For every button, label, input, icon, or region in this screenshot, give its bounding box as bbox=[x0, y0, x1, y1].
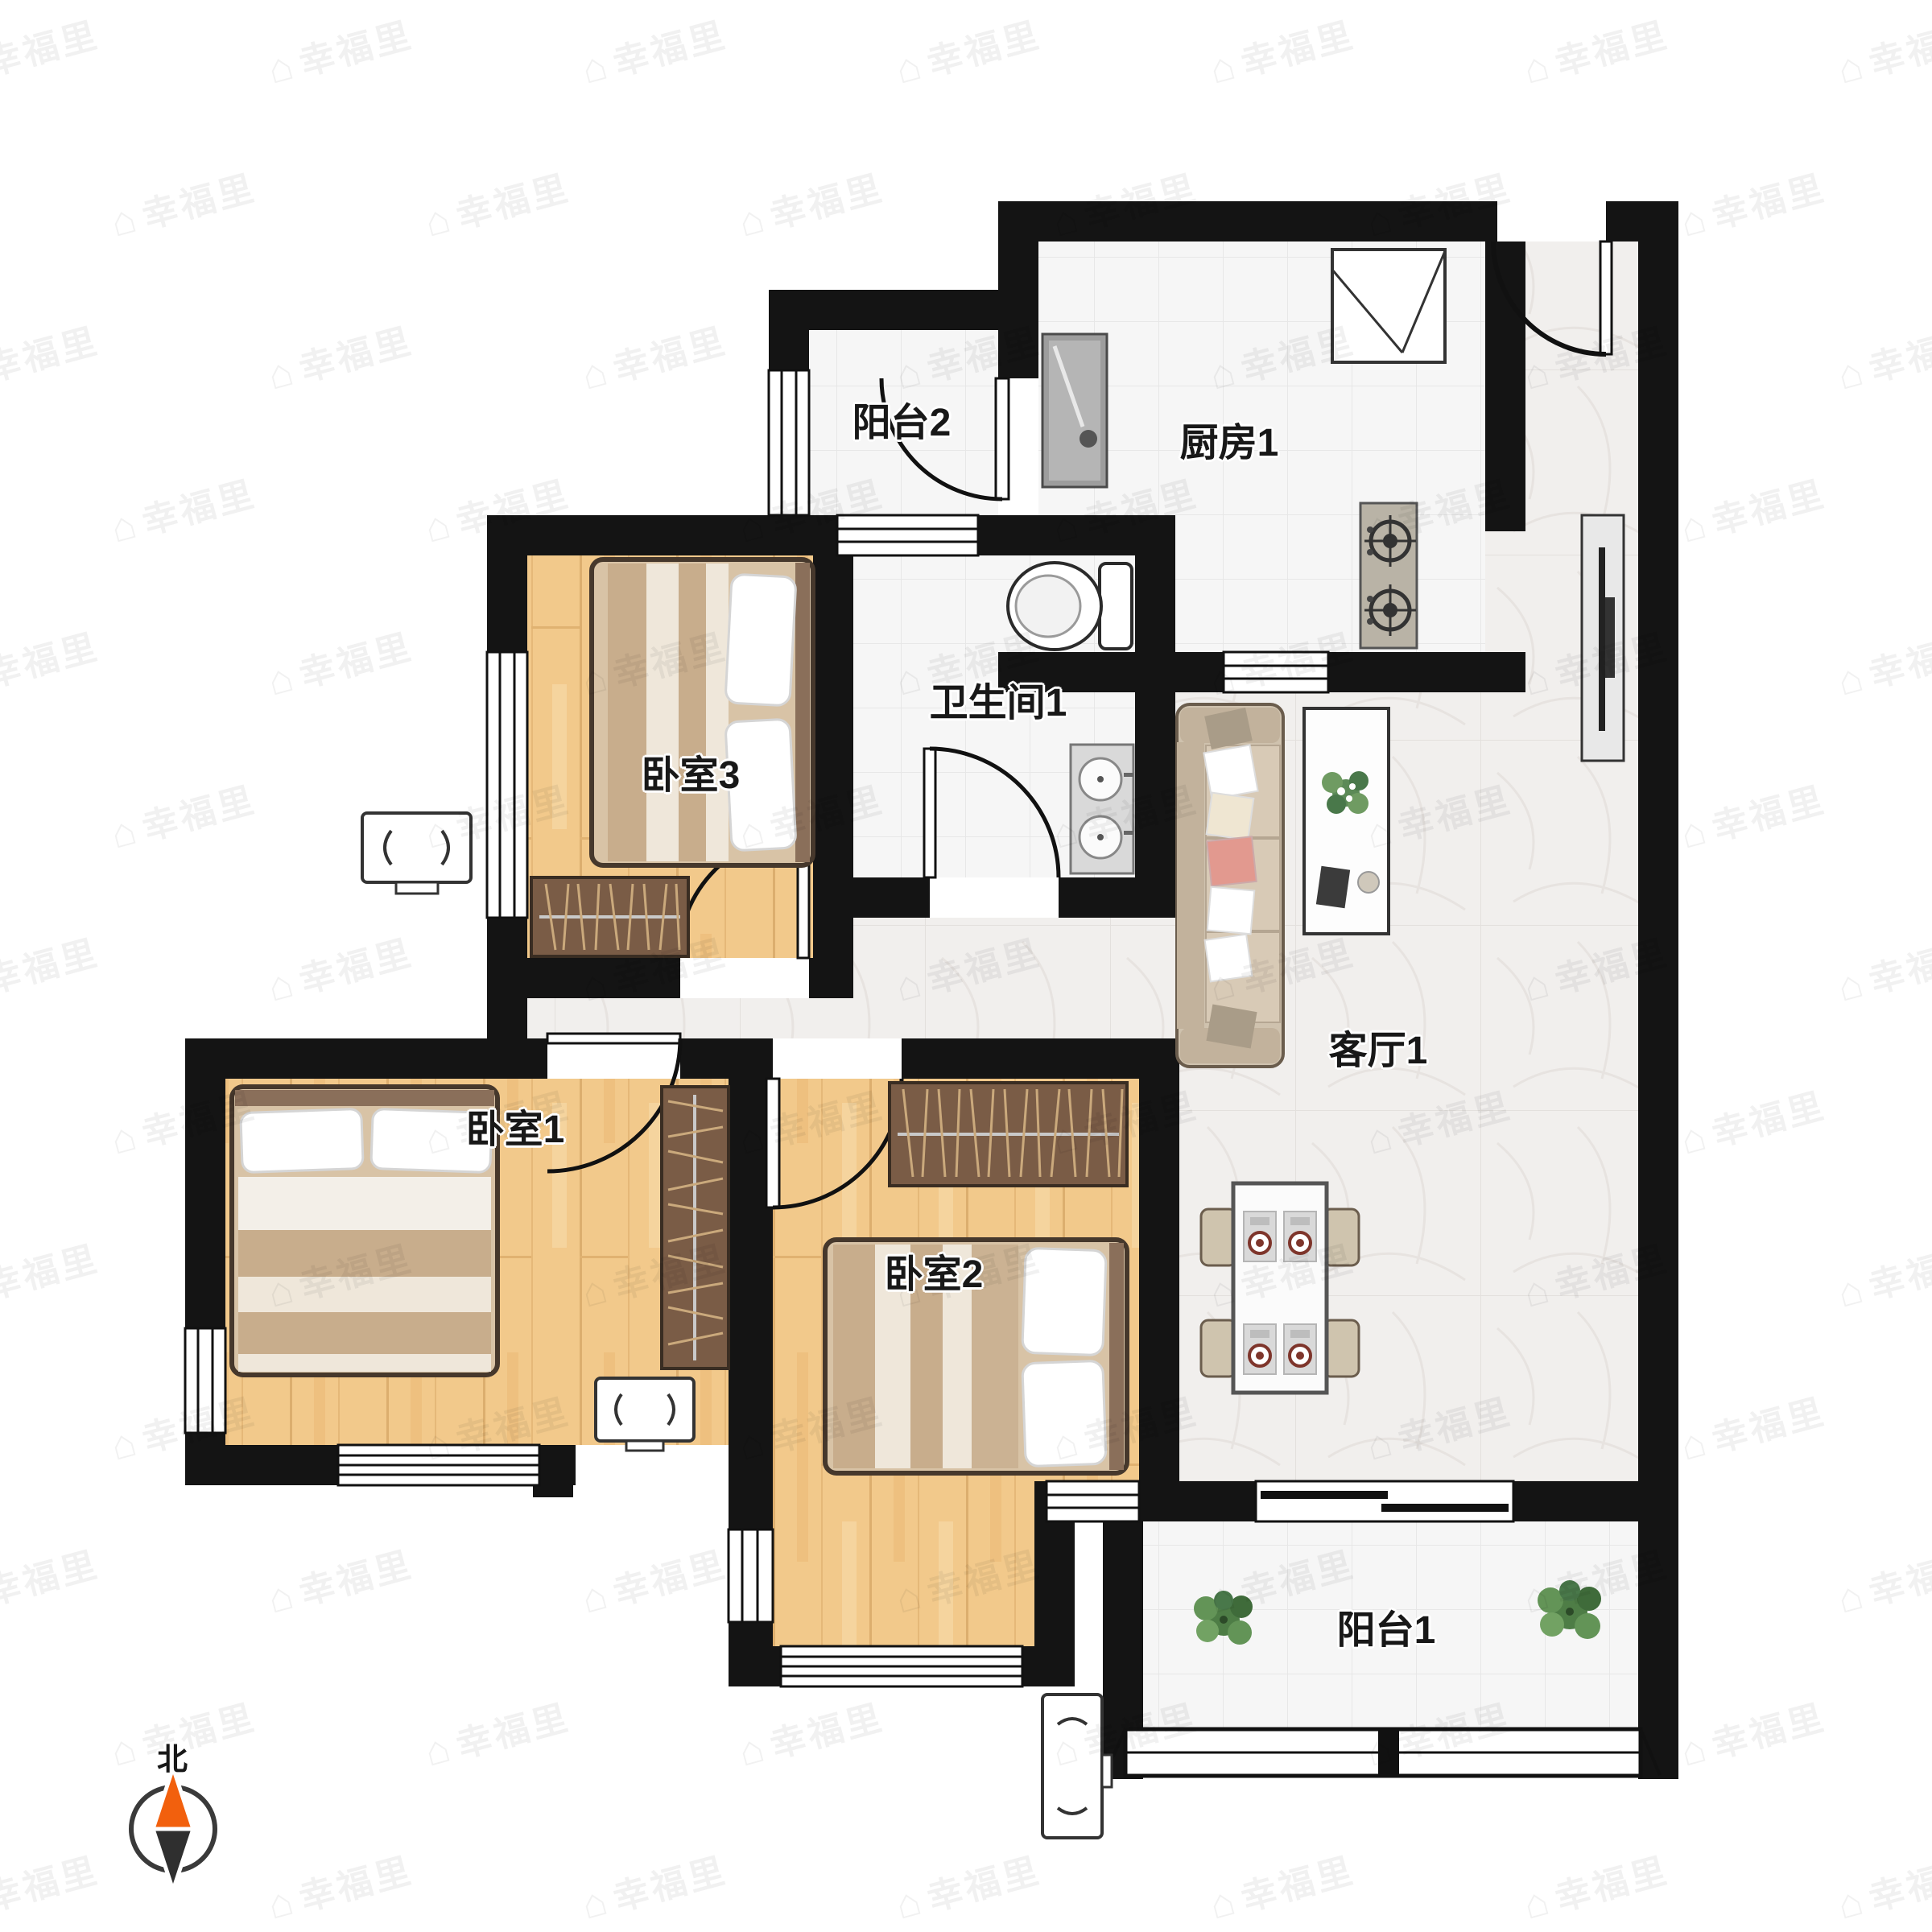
bedroom1-wardrobe bbox=[662, 1087, 729, 1368]
wall bbox=[1485, 242, 1525, 531]
window-bedroom1-left bbox=[185, 1328, 225, 1433]
window-bedroom2-alcove-bottom bbox=[781, 1646, 1022, 1686]
bedroom2-alcove-floor bbox=[773, 1481, 1034, 1646]
window-bedroom2-left bbox=[729, 1529, 773, 1622]
wall bbox=[1139, 1079, 1179, 1521]
wall bbox=[769, 290, 1038, 330]
window-balcony2-bathroom bbox=[837, 515, 978, 555]
window-bedroom2-right bbox=[1046, 1481, 1139, 1521]
dining-chair bbox=[1201, 1209, 1236, 1265]
wall bbox=[185, 1079, 225, 1328]
sofa bbox=[1177, 704, 1283, 1067]
wall bbox=[487, 958, 680, 998]
dining-chair bbox=[1323, 1209, 1359, 1265]
wall bbox=[487, 555, 527, 652]
wall bbox=[769, 330, 809, 370]
wall bbox=[1135, 555, 1175, 877]
wall bbox=[902, 1038, 1179, 1079]
coffee-table bbox=[1304, 708, 1389, 934]
window-kitchen-pass bbox=[1224, 652, 1328, 692]
kitchen-corner-counter bbox=[1332, 250, 1445, 362]
bedroom3-bed bbox=[592, 559, 813, 865]
compass-north-label: 北 bbox=[157, 1735, 188, 1779]
wall bbox=[487, 515, 1175, 555]
room-label-kitchen-1: 厨房1 bbox=[1180, 411, 1279, 467]
gas-stove bbox=[1360, 503, 1417, 648]
wall bbox=[998, 242, 1038, 378]
dining-chair bbox=[1323, 1320, 1359, 1377]
wall bbox=[1638, 242, 1678, 1779]
wall bbox=[1606, 201, 1678, 242]
wall bbox=[185, 1445, 338, 1485]
compass bbox=[131, 1768, 215, 1890]
room-label-bedroom-1: 卧室1 bbox=[466, 1097, 565, 1154]
window-bedroom3-left bbox=[487, 652, 527, 918]
room-label-balcony-2: 阳台2 bbox=[852, 390, 952, 447]
washing-machine bbox=[1042, 334, 1107, 487]
bedroom2-wardrobe bbox=[890, 1083, 1127, 1186]
bedroom3-wardrobe bbox=[531, 877, 688, 956]
toilet bbox=[1008, 563, 1132, 650]
bedroom1-bed bbox=[232, 1087, 497, 1375]
ac-unit bbox=[596, 1378, 694, 1451]
room-label-bathroom-1: 卫生间1 bbox=[930, 671, 1067, 727]
room-label-bedroom-2: 卧室2 bbox=[885, 1242, 984, 1298]
room-label-balcony-1: 阳台1 bbox=[1337, 1598, 1436, 1654]
wall bbox=[809, 958, 853, 998]
room-label-bedroom-3: 卧室3 bbox=[642, 743, 741, 799]
window-balcony1-bottom bbox=[1104, 1729, 1660, 1776]
window-bedroom1-bottom bbox=[338, 1445, 539, 1485]
sliding-door-balcony1 bbox=[1256, 1481, 1513, 1521]
bathroom-vanity bbox=[1071, 745, 1133, 873]
ac-unit bbox=[362, 813, 471, 894]
wall bbox=[185, 1038, 547, 1079]
dining-chair bbox=[1201, 1320, 1236, 1377]
wall bbox=[1513, 1481, 1638, 1521]
floorplan-drawing bbox=[0, 0, 1932, 1932]
room-label-living-room-1: 客厅1 bbox=[1329, 1018, 1428, 1075]
wall bbox=[1059, 877, 1175, 918]
ac-unit bbox=[1042, 1695, 1112, 1838]
hallway-floor bbox=[853, 918, 1175, 998]
south-needle-icon bbox=[153, 1829, 193, 1890]
tv-unit bbox=[1582, 515, 1624, 761]
wall bbox=[1179, 1481, 1256, 1521]
wall bbox=[813, 918, 853, 958]
window-balcony2-left bbox=[769, 370, 809, 515]
wall bbox=[1328, 652, 1525, 692]
wall bbox=[680, 1038, 773, 1079]
wall bbox=[813, 877, 930, 918]
wall bbox=[998, 201, 1497, 242]
floorplan-canvas: ⌂幸福里⌂幸福里⌂幸福里⌂幸福里⌂幸福里⌂幸福里⌂幸福里⌂幸福里⌂幸福里⌂幸福里… bbox=[0, 0, 1932, 1932]
